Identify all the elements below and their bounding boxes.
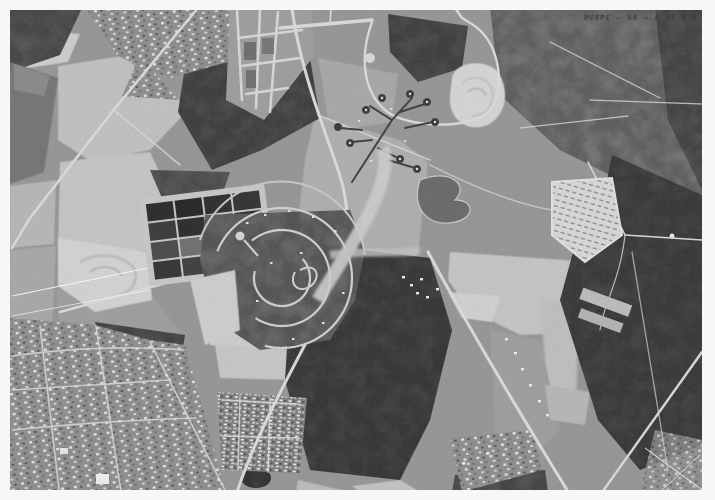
aerial-photo-sheet: DVRPC – 60 – A 37 B B xyxy=(0,0,715,500)
aerial-photograph xyxy=(0,0,715,500)
film-grain-overlay xyxy=(10,8,702,492)
photo-reference-label: DVRPC – 60 – A 37 B B xyxy=(584,14,698,22)
